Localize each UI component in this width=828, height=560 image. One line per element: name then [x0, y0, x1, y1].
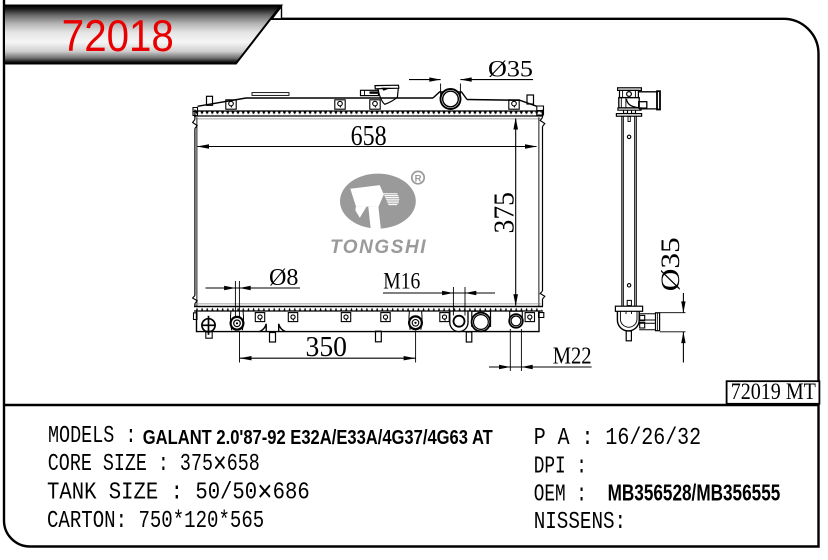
svg-text:M16: M16: [383, 269, 420, 294]
svg-text:TANK SIZE : 50/50×686: TANK SIZE : 50/50×686: [47, 477, 310, 511]
svg-text:DPI :: DPI :: [534, 453, 587, 480]
svg-text:Ø35: Ø35: [488, 57, 533, 83]
svg-text:TONGSHI: TONGSHI: [330, 237, 427, 258]
svg-text:CARTON: 750*120*565: CARTON: 750*120*565: [47, 508, 264, 535]
svg-text:P A : 16/26/32: P A : 16/26/32: [534, 425, 701, 452]
svg-text:72018: 72018: [62, 12, 174, 61]
svg-text:MODELS :: MODELS :: [48, 423, 136, 450]
svg-text:GALANT 2.0'87-92 E32A/E33A/4G3: GALANT 2.0'87-92 E32A/E33A/4G37/4G63 AT: [143, 427, 493, 449]
svg-text:CORE SIZE : 375×658: CORE SIZE : 375×658: [48, 449, 260, 483]
svg-text:375: 375: [490, 192, 521, 234]
svg-text:M22: M22: [553, 344, 592, 370]
svg-text:OEM :: OEM :: [534, 482, 587, 509]
svg-text:72019 MT: 72019 MT: [731, 379, 816, 404]
svg-text:R: R: [415, 174, 422, 185]
svg-text:658: 658: [351, 121, 387, 152]
svg-text:350: 350: [306, 332, 348, 363]
svg-text:MB356528/MB356555: MB356528/MB356555: [608, 479, 781, 505]
svg-text:Ø35: Ø35: [656, 237, 685, 291]
svg-text:NISSENS:: NISSENS:: [534, 509, 626, 536]
svg-text:Ø8: Ø8: [269, 265, 299, 291]
